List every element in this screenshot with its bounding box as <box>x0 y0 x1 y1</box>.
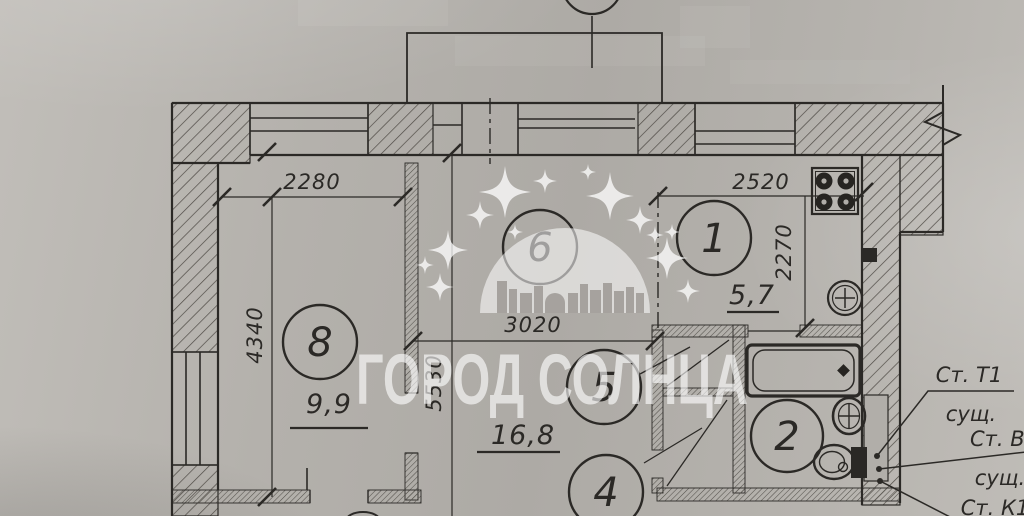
dim-3020: 3020 <box>504 313 561 337</box>
room-number-4: 4 <box>593 470 618 516</box>
toilet-icon <box>814 445 867 479</box>
axis-circle <box>562 0 622 14</box>
area-living: 16,8 <box>491 420 555 451</box>
riser-note-t1: сущ. <box>946 402 996 426</box>
partition-bottom-a <box>172 490 310 503</box>
window-top-2 <box>518 119 635 128</box>
scanned-floor-plan-photo: 6 1 8 5 2 4 9,9 16,8 5,7 2280 2520 3020 … <box>0 0 1024 516</box>
watermark-title: ГОРОД СОЛНЦА <box>356 340 748 420</box>
partition-bottom-bathroom <box>657 488 900 501</box>
wall-left-upper <box>172 163 218 352</box>
dim-2270: 2270 <box>772 223 796 280</box>
riser-label-k1: Ст. К1 <box>961 496 1024 516</box>
wall-top-right-corner <box>795 103 943 155</box>
kitchen-sink-icon <box>828 281 862 315</box>
room-number-2: 2 <box>774 414 799 460</box>
bathtub-icon <box>747 345 860 396</box>
room-number-8: 8 <box>307 320 332 366</box>
wall-right-corner-block <box>900 155 943 235</box>
stove-icon <box>812 168 858 214</box>
dim-2520: 2520 <box>732 170 789 194</box>
room-number-1: 1 <box>701 216 726 262</box>
toilet-tank <box>851 447 867 478</box>
dim-4340: 4340 <box>243 306 267 363</box>
floor-plan-drawing: 6 1 8 5 2 4 9,9 16,8 5,7 2280 2520 3020 … <box>0 0 1024 516</box>
washbasin-icon <box>833 398 865 434</box>
area-kitchen: 5,7 <box>729 280 775 311</box>
partition-bottom-b <box>368 490 421 503</box>
dim-2280: 2280 <box>283 170 340 194</box>
partition-kitchen-bottom-left <box>652 325 748 337</box>
wall-vent-box <box>862 248 877 262</box>
wall-pier-top-center <box>368 103 433 155</box>
partition-kitchen-bottom-right <box>800 325 862 337</box>
window-left <box>186 352 200 465</box>
riser-note-v1: сущ. <box>975 466 1024 490</box>
window-top-1 <box>250 118 368 131</box>
riser-label-v1: Ст. В1 <box>970 427 1024 451</box>
wall-corner-top-left <box>172 103 250 163</box>
bathtub-drain <box>837 364 850 377</box>
riser-label-t1: Ст. Т1 <box>936 363 1002 387</box>
area-room8: 9,9 <box>306 389 352 420</box>
lower-room-fixture-arc <box>346 512 380 516</box>
window-left-sills <box>172 352 218 465</box>
wall-pier-top-right <box>638 103 695 155</box>
window-kitchen <box>695 131 795 144</box>
